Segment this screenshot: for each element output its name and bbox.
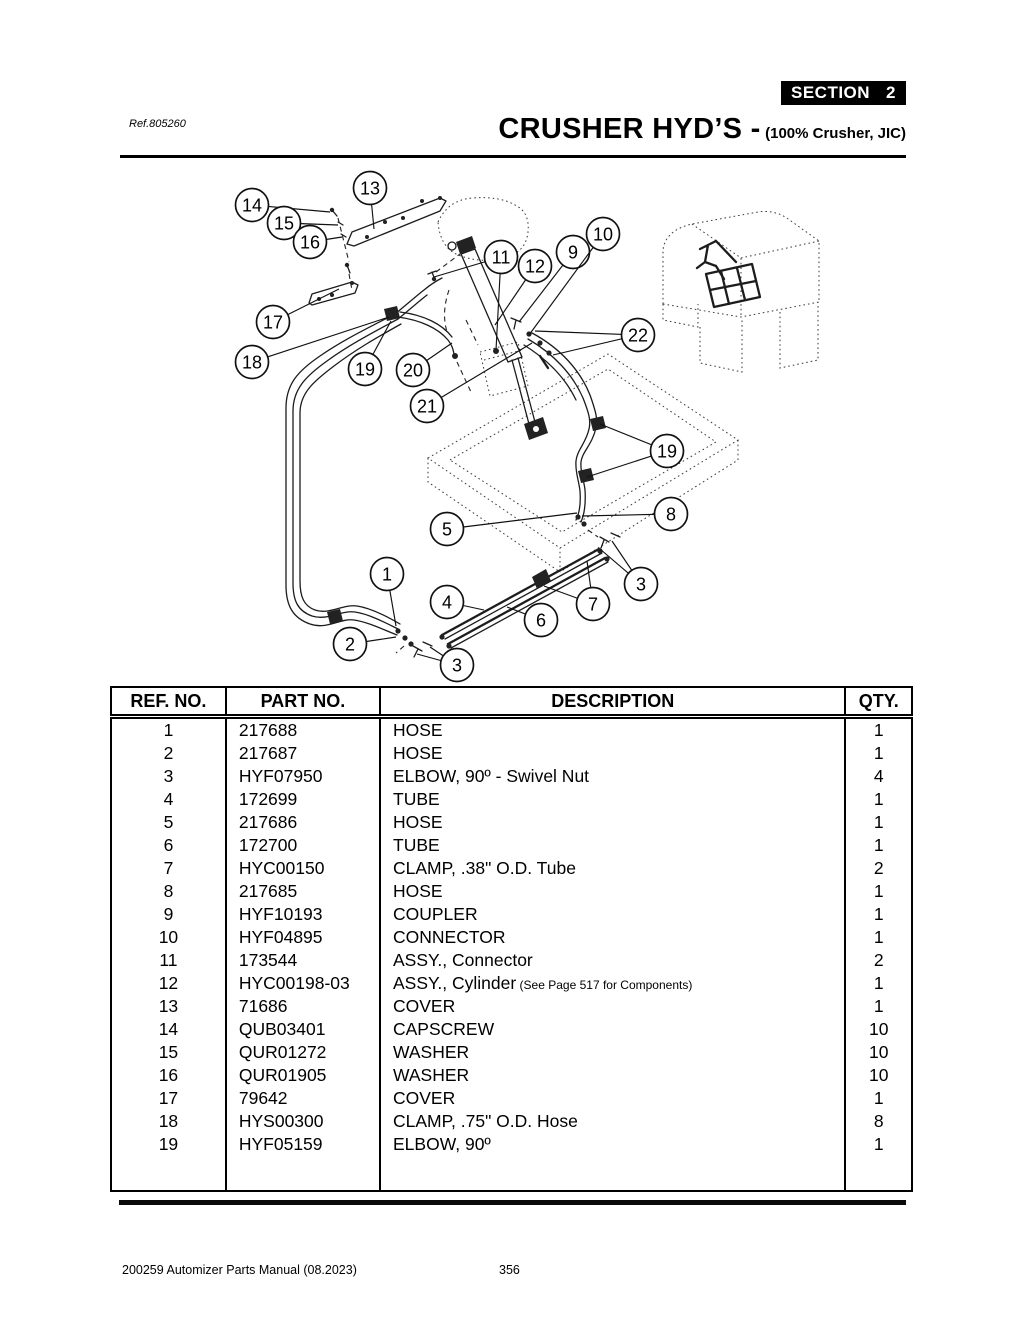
svg-text:15: 15 [274, 214, 294, 234]
svg-text:2: 2 [345, 635, 355, 655]
qty-cell: 1 [845, 742, 912, 765]
part-cell: HYS00300 [226, 1110, 380, 1133]
svg-text:8: 8 [666, 505, 676, 525]
part-cell: HYF05159 [226, 1133, 380, 1156]
callout-16: 16 [294, 226, 343, 259]
ref-cell: 15 [111, 1041, 226, 1064]
svg-text:18: 18 [242, 353, 262, 373]
table-row: 12HYC00198-03ASSY., Cylinder (See Page 5… [111, 972, 912, 995]
qty-cell: 10 [845, 1018, 912, 1041]
table-row: 5217686HOSE1 [111, 811, 912, 834]
manual-page: SECTION 2 Ref.805260 CRUSHER HYD’S - (10… [0, 0, 1024, 1326]
header-ref-no: REF. NO. [111, 687, 226, 717]
desc-cell: CAPSCREW [380, 1018, 845, 1041]
qty-cell: 1 [845, 788, 912, 811]
part-cell: HYF07950 [226, 765, 380, 788]
table-row: 6172700TUBE1 [111, 834, 912, 857]
callout-1: 1 [371, 558, 404, 627]
ref-cell: 12 [111, 972, 226, 995]
svg-text:22: 22 [628, 326, 648, 346]
callout-2: 2 [334, 628, 397, 661]
hose-bundle-left [286, 278, 442, 635]
svg-text:3: 3 [452, 656, 462, 676]
ref-cell: 5 [111, 811, 226, 834]
ref-cell: 3 [111, 765, 226, 788]
qty-cell: 1 [845, 1087, 912, 1110]
table-row: 11173544ASSY., Connector2 [111, 949, 912, 972]
cover-13 [347, 196, 446, 246]
qty-cell: 1 [845, 926, 912, 949]
part-cell: QUR01905 [226, 1064, 380, 1087]
table-row: 1371686COVER1 [111, 995, 912, 1018]
desc-cell: HOSE [380, 717, 845, 743]
table-filler-row [111, 1156, 912, 1191]
callout-21: 21 [411, 343, 533, 423]
qty-cell: 1 [845, 717, 912, 743]
part-cell: HYF04895 [226, 926, 380, 949]
svg-text:7: 7 [588, 595, 598, 615]
footer-page-number: 356 [499, 1263, 520, 1277]
qty-cell: 1 [845, 972, 912, 995]
svg-text:3: 3 [636, 575, 646, 595]
table-row: 19HYF05159ELBOW, 90º1 [111, 1133, 912, 1156]
ref-cell: 17 [111, 1087, 226, 1110]
header-description: DESCRIPTION [380, 687, 845, 717]
qty-cell: 1 [845, 811, 912, 834]
svg-text:16: 16 [300, 233, 320, 253]
crusher-frame-part [697, 241, 760, 307]
desc-cell: CLAMP, .38" O.D. Tube [380, 857, 845, 880]
svg-text:4: 4 [442, 593, 452, 613]
desc-cell: COUPLER [380, 903, 845, 926]
svg-text:11: 11 [492, 248, 511, 268]
svg-text:19: 19 [355, 360, 375, 380]
desc-cell: HOSE [380, 742, 845, 765]
screws-14-15-16 [330, 208, 352, 290]
table-row: 14QUB03401CAPSCREW10 [111, 1018, 912, 1041]
part-cell: 71686 [226, 995, 380, 1018]
svg-text:14: 14 [242, 196, 262, 216]
table-row: 4172699TUBE1 [111, 788, 912, 811]
svg-text:20: 20 [403, 361, 423, 381]
machine-thumbnail [663, 211, 819, 372]
header-part-no: PART NO. [226, 687, 380, 717]
part-cell: 217686 [226, 811, 380, 834]
table-row: 2217687HOSE1 [111, 742, 912, 765]
svg-text:21: 21 [417, 397, 437, 417]
desc-cell: WASHER [380, 1064, 845, 1087]
ref-cell: 1 [111, 717, 226, 743]
desc-cell: COVER [380, 995, 845, 1018]
desc-note: (See Page 517 for Components) [516, 978, 692, 992]
part-cell: 172700 [226, 834, 380, 857]
part-cell: HYF10193 [226, 903, 380, 926]
desc-cell: ELBOW, 90º - Swivel Nut [380, 765, 845, 788]
header-qty: QTY. [845, 687, 912, 717]
desc-cell: COVER [380, 1087, 845, 1110]
callout-19: 19 [349, 321, 392, 386]
desc-cell: TUBE [380, 834, 845, 857]
table-row: 7HYC00150CLAMP, .38" O.D. Tube2 [111, 857, 912, 880]
svg-text:9: 9 [568, 243, 578, 263]
desc-cell: WASHER [380, 1041, 845, 1064]
ref-cell: 18 [111, 1110, 226, 1133]
desc-cell: ELBOW, 90º [380, 1133, 845, 1156]
desc-cell: ASSY., Cylinder (See Page 517 for Compon… [380, 972, 845, 995]
svg-text:17: 17 [263, 313, 283, 333]
svg-text:1: 1 [382, 565, 392, 585]
exploded-parts-diagram: 12334567891011121314151617181919202122 [0, 0, 1024, 690]
callout-20: 20 [397, 343, 453, 387]
table-row: 18HYS00300CLAMP, .75" O.D. Hose8 [111, 1110, 912, 1133]
svg-text:12: 12 [525, 257, 545, 277]
callout-3: 3 [600, 541, 658, 601]
ref-cell: 6 [111, 834, 226, 857]
ref-cell: 11 [111, 949, 226, 972]
part-cell: HYC00198-03 [226, 972, 380, 995]
callout-3: 3 [417, 647, 474, 682]
table-row: 9HYF10193COUPLER1 [111, 903, 912, 926]
ref-cell: 16 [111, 1064, 226, 1087]
qty-cell: 1 [845, 1133, 912, 1156]
ref-cell: 13 [111, 995, 226, 1018]
part-cell: 217688 [226, 717, 380, 743]
part-cell: 217687 [226, 742, 380, 765]
svg-text:13: 13 [360, 179, 380, 199]
qty-cell: 1 [845, 880, 912, 903]
qty-cell: 1 [845, 834, 912, 857]
qty-cell: 10 [845, 1064, 912, 1087]
ref-cell: 2 [111, 742, 226, 765]
callout-17: 17 [257, 289, 340, 339]
desc-cell: ASSY., Connector [380, 949, 845, 972]
callout-5: 5 [431, 513, 578, 546]
svg-text:10: 10 [593, 225, 613, 245]
callout-4: 4 [431, 586, 485, 619]
callout-22: 22 [535, 319, 655, 356]
qty-cell: 1 [845, 903, 912, 926]
desc-cell: HOSE [380, 811, 845, 834]
parts-table: REF. NO. PART NO. DESCRIPTION QTY. 12176… [110, 686, 913, 1192]
callout-19: 19 [587, 424, 684, 477]
ref-cell: 8 [111, 880, 226, 903]
ref-cell: 19 [111, 1133, 226, 1156]
part-cell: 173544 [226, 949, 380, 972]
part-cell: 172699 [226, 788, 380, 811]
footer-manual-label: 200259 Automizer Parts Manual (08.2023) [122, 1263, 357, 1277]
table-row: 15QUR01272WASHER10 [111, 1041, 912, 1064]
table-header-row: REF. NO. PART NO. DESCRIPTION QTY. [111, 687, 912, 717]
part-cell: 79642 [226, 1087, 380, 1110]
ref-cell: 9 [111, 903, 226, 926]
qty-cell: 2 [845, 857, 912, 880]
desc-cell: HOSE [380, 880, 845, 903]
svg-text:5: 5 [442, 520, 452, 540]
fittings-bottom [395, 628, 432, 657]
callout-11: 11 [434, 241, 518, 351]
deck-outline [428, 354, 738, 572]
qty-cell: 4 [845, 765, 912, 788]
ref-cell: 4 [111, 788, 226, 811]
desc-cell: CLAMP, .75" O.D. Hose [380, 1110, 845, 1133]
desc-cell: TUBE [380, 788, 845, 811]
table-row: 1217688HOSE1 [111, 717, 912, 743]
part-cell: QUR01272 [226, 1041, 380, 1064]
table-row: 1779642COVER1 [111, 1087, 912, 1110]
ref-cell: 7 [111, 857, 226, 880]
part-cell: HYC00150 [226, 857, 380, 880]
part-cell: QUB03401 [226, 1018, 380, 1041]
svg-text:6: 6 [536, 611, 546, 631]
bottom-rule [119, 1200, 906, 1205]
qty-cell: 2 [845, 949, 912, 972]
ref-cell: 14 [111, 1018, 226, 1041]
table-row: 8217685HOSE1 [111, 880, 912, 903]
qty-cell: 1 [845, 995, 912, 1018]
ref-cell: 10 [111, 926, 226, 949]
table-row: 3HYF07950ELBOW, 90º - Swivel Nut4 [111, 765, 912, 788]
qty-cell: 10 [845, 1041, 912, 1064]
svg-text:19: 19 [657, 442, 677, 462]
table-row: 10HYF04895CONNECTOR1 [111, 926, 912, 949]
desc-cell: CONNECTOR [380, 926, 845, 949]
part-cell: 217685 [226, 880, 380, 903]
table-row: 16QUR01905WASHER10 [111, 1064, 912, 1087]
qty-cell: 8 [845, 1110, 912, 1133]
